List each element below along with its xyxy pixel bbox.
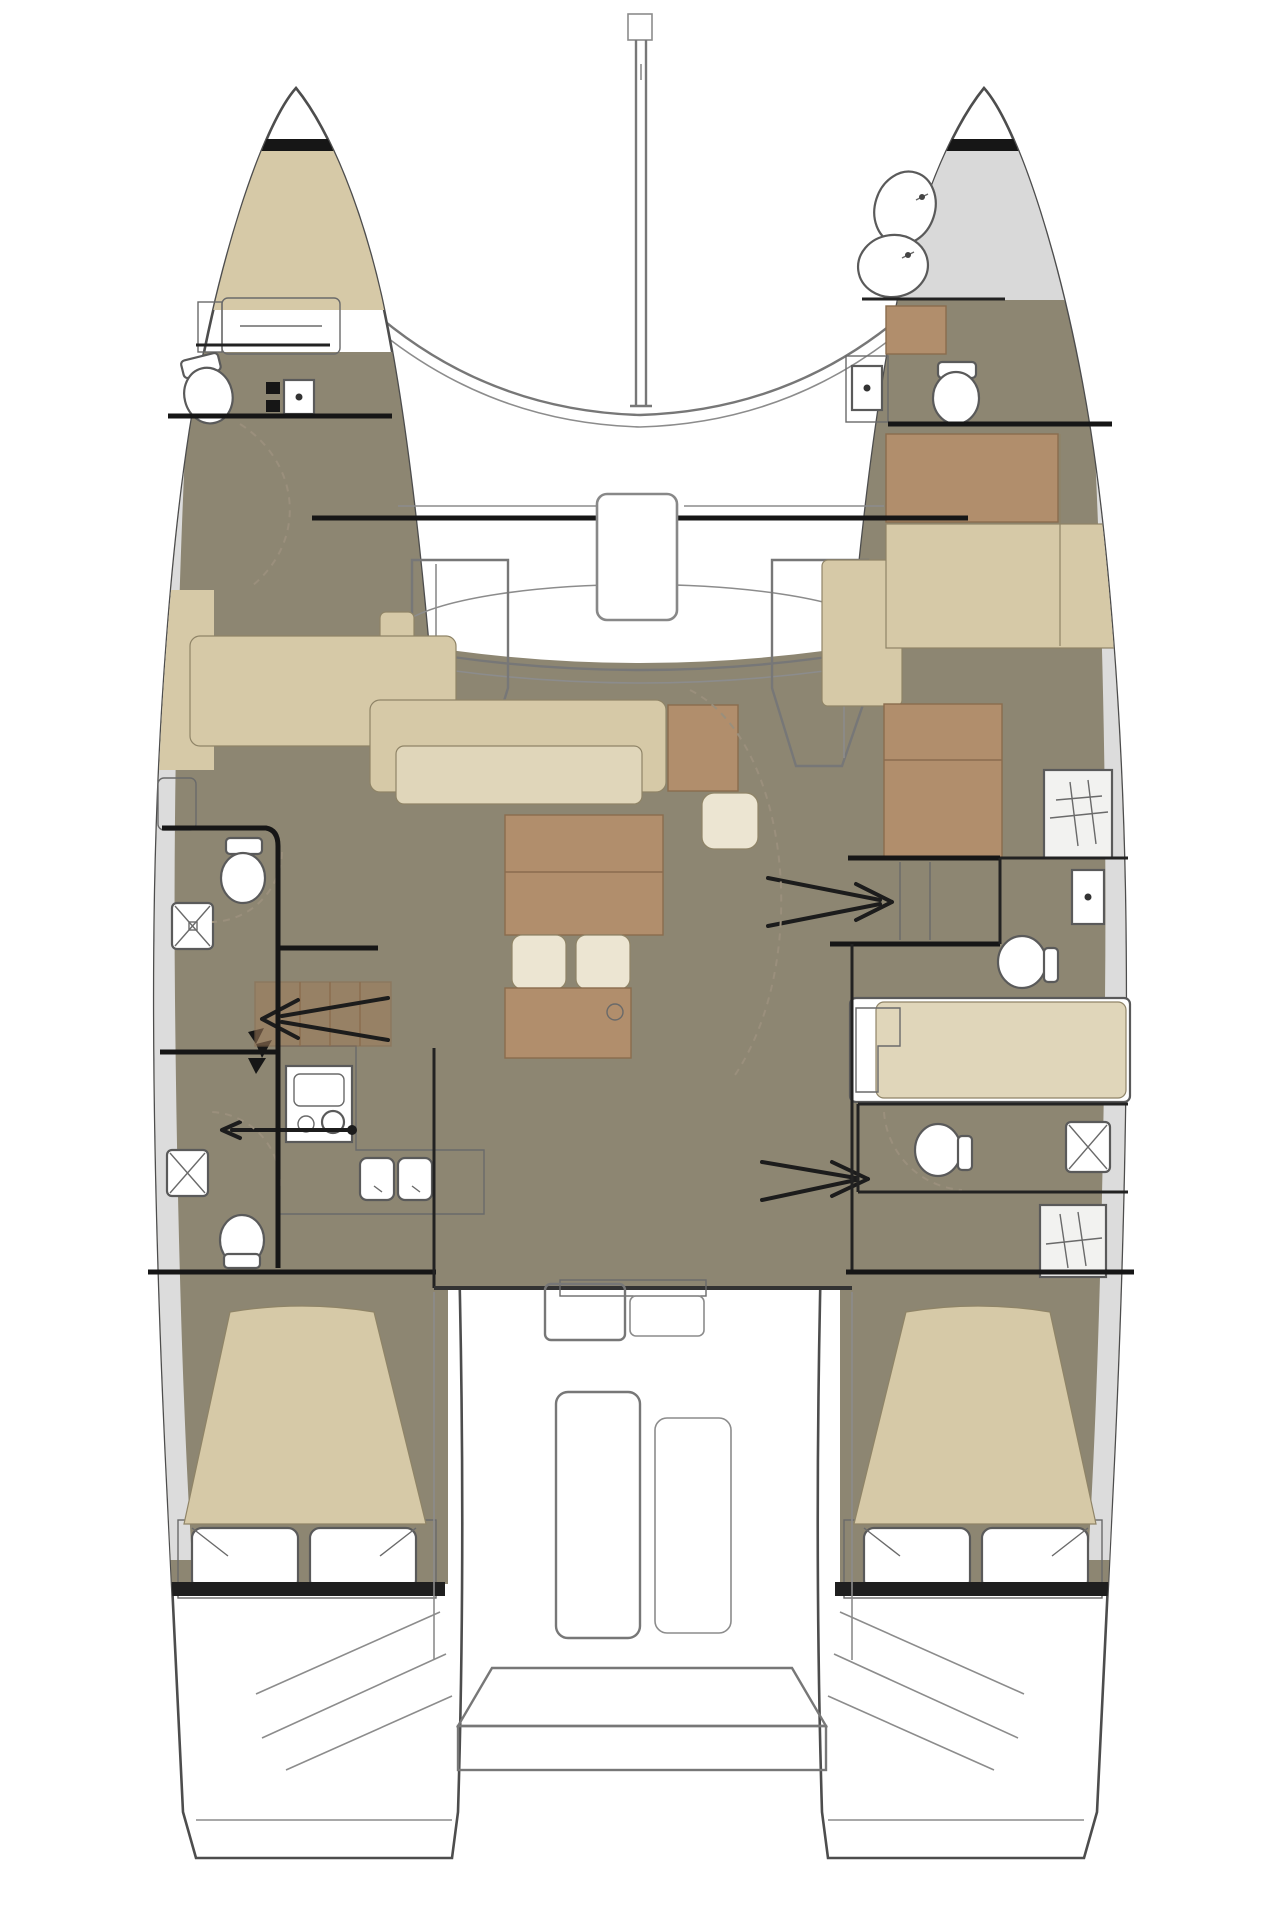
stbd-fwd-head-sink-drain [1085,894,1092,901]
port-aft-pillow-2 [310,1528,416,1590]
mast-head [628,14,652,40]
port-aft-pillow-1 [192,1528,298,1590]
stbd-fwd-berth [886,524,1118,648]
aft-platform [458,1726,826,1770]
stbd-bow-band [946,139,1022,151]
galley-sink-1 [360,1158,394,1200]
port-bow-sink-drain [296,394,303,401]
galley-door-dot [347,1125,357,1135]
nav-cabinet-stbd [884,704,1002,858]
port-stern-band [150,1582,445,1596]
cockpit-console-1 [545,1284,625,1340]
stbd-bow-toilet-bowl [933,372,979,424]
deck-plan-canvas: Catamaran interior deck plan, bow up, tw… [0,0,1280,1921]
port-forepeak-berth [190,148,400,310]
stbd-forepeak-dot-2 [905,252,911,258]
deck-plan-svg: Catamaran interior deck plan, bow up, tw… [0,0,1280,1921]
stbd-forepeak-dot-1 [919,194,925,200]
port-bow-door-stop-2 [266,400,280,412]
stbd-aft-pillow-2 [982,1528,1088,1590]
stbd-bow-counter [886,306,946,354]
stbd-aft-head-toilet [915,1124,961,1176]
cockpit-bench-2 [655,1418,731,1633]
salon-sofa-seat [396,746,642,804]
port-fwd-toilet-bowl [221,853,265,903]
port-companionway [255,982,391,1046]
stbd-fwd-locker [886,434,1058,522]
salon-table [505,815,663,935]
aft-platform-step [458,1668,826,1726]
salon-stool-1 [512,935,566,989]
stbd-berth-mattress [876,1002,1126,1098]
cockpit-console-2 [630,1296,704,1336]
salon-stool-2 [576,935,630,989]
galley-sink-2 [398,1158,432,1200]
salon-aft-unit [505,988,631,1058]
stbd-aft-pillow-1 [864,1528,970,1590]
stbd-fwd-head-toilet [998,936,1046,988]
salon-front-hatch [597,494,677,620]
stbd-aft-head-toilet-tank [958,1136,972,1170]
stbd-bow-sink-drain [864,385,871,392]
stbd-fwd-head-toilet-tank [1044,948,1058,982]
salon-side-table [668,705,738,791]
port-fwd-toilet-tank [226,838,262,854]
port-bow-band [258,139,334,151]
port-aft-toilet-tank [224,1254,260,1268]
port-bow-door-stop-1 [266,382,280,394]
stbd-stern-band [835,1582,1130,1596]
salon-ottoman [702,793,758,849]
cockpit-bench-1 [556,1392,640,1638]
